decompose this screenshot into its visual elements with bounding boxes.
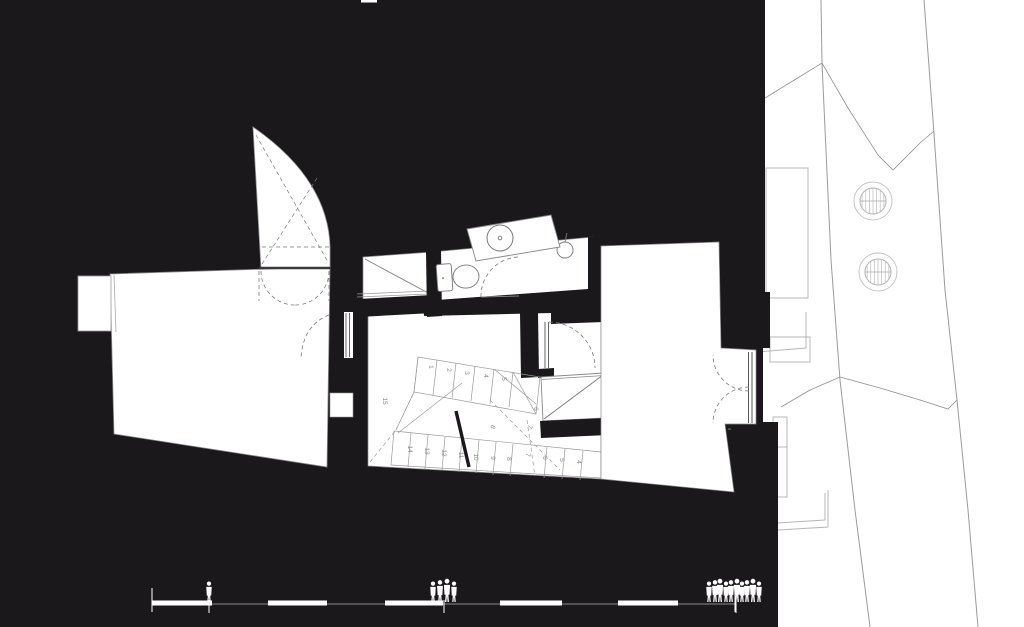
stair-landing [540,373,608,438]
stair-tread-number: 4 [482,374,489,378]
scale-figure-head [452,582,456,586]
stair-tread-number: 14 [406,445,413,453]
scale-figure-head [740,582,744,586]
scale-bar-segment [152,601,212,606]
scale-figure-head [751,579,756,584]
stair-tread-number: 5 [500,377,507,381]
stair-tread-number: 4 [575,460,582,464]
scale-bar-segment [618,601,678,606]
stair-tread-number: 1 [427,365,434,369]
left-room-floor [110,267,330,467]
stair-tread-number: 7 [524,453,531,457]
tree-icon [854,182,892,220]
scale-figure-head [431,582,435,586]
scale-figure-head [735,579,740,584]
scale-figure-head [713,580,718,585]
scale-bar-segment [500,601,562,606]
scale-figure-head [757,582,761,586]
basin-icon [487,225,513,251]
scale-figure-head [718,579,723,584]
floor-plan-sheet: 1512345678141312111098765421 [0,0,1024,627]
window-bay [78,276,111,331]
stair-tread-number: 5 [558,458,565,462]
stair-tread-number: 6 [532,407,539,411]
scale-figure-head [445,579,450,584]
floor-plan-drawing: 1512345678141312111098765421 [0,0,1024,627]
top-edge-notch [361,0,377,3]
scale-figure-head [724,582,728,586]
stair-tread-number: 10 [472,453,479,461]
stair-tread-number: 11 [457,452,464,459]
scale-figure-head [207,582,211,586]
stair-hall-wall-a [520,312,539,378]
stair-tread-number: 12 [440,449,447,457]
scale-figure-head [438,580,443,585]
stair-tread-number: 9 [489,456,496,460]
stair-tread-number: 2 [445,368,452,372]
stair-tread-number: 13 [423,447,430,455]
stair-tread-number: 8 [505,457,512,461]
scale-figure-head [745,580,750,585]
landing-south-wall [540,418,608,438]
scale-bar-segment [268,601,327,606]
stair-tread-number: 15 [381,397,388,405]
central-block [357,233,603,479]
scale-figure-head [707,582,711,586]
central-floor [363,237,601,479]
scale-figure-head [729,580,734,585]
wall-niche [330,393,353,417]
stair-tread-number: 6 [541,456,548,460]
tree-icon [859,253,897,291]
stair-tread-number: 3 [463,371,470,375]
